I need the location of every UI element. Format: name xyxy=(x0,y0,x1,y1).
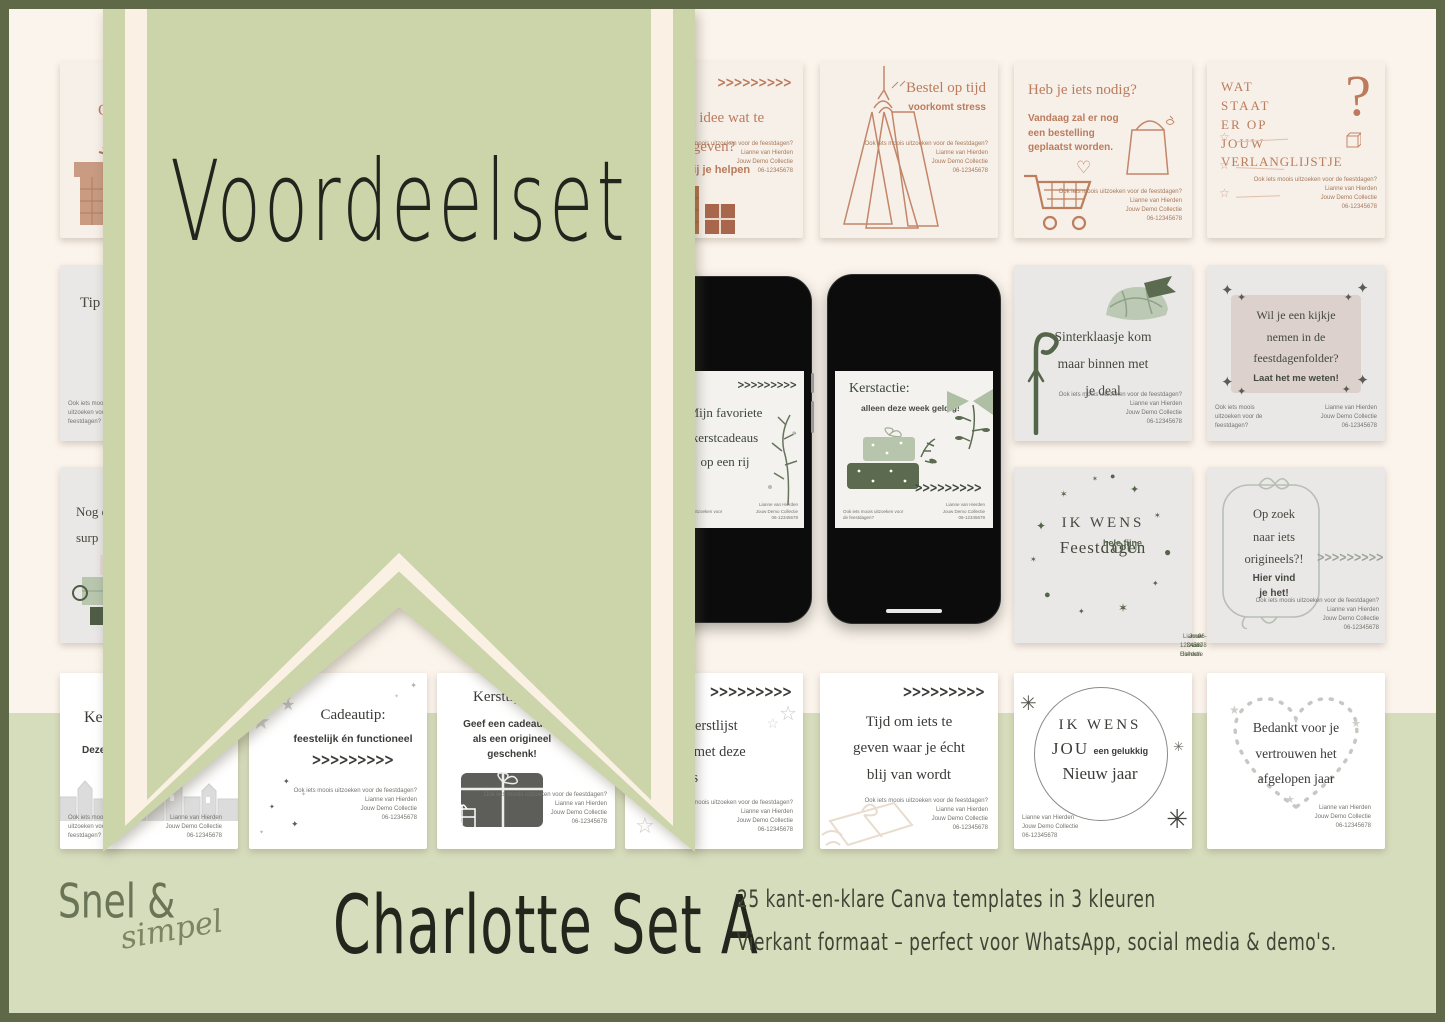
contact-block: Lianne van HierdenJouw Demo Collectie06-… xyxy=(1022,814,1078,841)
contact-line: Jouw Demo Collectie xyxy=(1256,615,1379,624)
chevrons-icon: >>>>>>>>> xyxy=(710,683,792,701)
star-icon: ☆ xyxy=(766,715,779,732)
firework-icon: ✳ xyxy=(1020,691,1037,716)
contact-line: Jouw Demo Collectie xyxy=(1059,206,1182,215)
contact-block: Ook iets moois uitzoeken voor de feestda… xyxy=(1215,404,1277,431)
template-card-sinterklaas: Sinterklaasje kom maar binnen met je dea… xyxy=(1014,265,1192,441)
card-title-line: IK WENS xyxy=(1034,717,1166,734)
chevrons-icon: >>>>>>>>> xyxy=(717,74,791,91)
contact-line: 06-12345678 xyxy=(1254,203,1377,212)
contact-line: Ook iets moois uitzoeken voor de feestda… xyxy=(865,797,988,806)
star-icon: ☆ xyxy=(1219,186,1230,200)
template-card-bedankt: ★ ★ ★ Bedankt voor je vertrouwen het afg… xyxy=(1207,673,1385,849)
card-title: Wil je een kijkje nemen in de feestdagen… xyxy=(1231,305,1361,370)
contact-line: Jouw Demo Collectie xyxy=(865,158,988,167)
chevrons-icon: >>>>>>>>> xyxy=(737,380,796,393)
star-icon: ☆ xyxy=(779,701,797,726)
contact-line: Ook iets moois uitzoeken voor de feestda… xyxy=(865,140,988,149)
sparkle-icon: ✦ xyxy=(1152,579,1159,588)
contact-block: Lianne van HierdenJouw Demo Collectie06-… xyxy=(1315,804,1371,831)
contact-block: Lianne van HierdenJouw Demo Collectie06-… xyxy=(943,502,985,522)
sparkle-icon: ✦ xyxy=(1356,279,1369,297)
gift-bag-icon xyxy=(1124,114,1176,178)
sparkle-icon: ✦ xyxy=(1344,291,1353,304)
card-title-line: WAT xyxy=(1221,78,1343,97)
contact-line: Ook iets moois uitzoeken voor de feestda… xyxy=(1059,391,1182,400)
card-title: Tijd om iets te geven waar je écht blij … xyxy=(820,709,998,788)
question-mark-icon: ? xyxy=(1345,62,1371,129)
card-title-line: afgelopen jaar xyxy=(1207,766,1385,792)
phone-screen-right: Kerstactie: alleen deze week geldig! >>>… xyxy=(835,371,993,528)
contact-line: Jouw Demo Collectie xyxy=(943,509,985,516)
staff-icon xyxy=(1026,319,1062,435)
contact-block: Ook iets moois uitzoeken voor de feestda… xyxy=(1059,188,1182,224)
dot-icon: ● xyxy=(1110,471,1115,481)
contact-block: Ook iets moois uitzoeken voor de feestda… xyxy=(1254,176,1377,212)
banner-layer-inner xyxy=(147,0,651,800)
dot-icon: ● xyxy=(1044,589,1051,601)
contact-line: Jouw Demo Collectie xyxy=(1254,194,1377,203)
card-title: Heb je iets nodig? xyxy=(1028,82,1137,99)
contact-line: Ook iets moois uitzoeken voor de feestda… xyxy=(843,509,905,523)
star-icon: ★ xyxy=(1285,793,1295,806)
phone-side-button xyxy=(811,401,814,433)
contact-block: Lianne van HierdenJouw Demo Collectie06-… xyxy=(756,502,798,522)
contact-line: Lianne van Hierden xyxy=(1254,185,1377,194)
contact-line: Ook iets moois uitzoeken voor de feestda… xyxy=(1059,188,1182,197)
contact-line: Ook iets moois uitzoeken voor de feestda… xyxy=(1215,404,1277,431)
contact-block: Lianne van HierdenJouw Demo Collectie06-… xyxy=(1321,404,1377,431)
card-subtitle: Laat het me weten! xyxy=(1231,373,1361,384)
card-body-line: geplaatst worden. xyxy=(1028,141,1119,156)
contact-line: 06-12345678 xyxy=(865,824,988,833)
template-card-tijd-om-iets: >>>>>>>>> Tijd om iets te geven waar je … xyxy=(820,673,998,849)
card-title-line: geven waar je écht xyxy=(820,735,998,761)
card-title-line: JOU een gelukkig xyxy=(1034,739,1166,759)
contact-block: Ook iets moois uitzoeken voor de feestda… xyxy=(1256,597,1379,633)
sparkle-icon: ✶ xyxy=(1118,601,1128,615)
template-card-origineels: Op zoek naar iets origineels?! Hier vind… xyxy=(1207,467,1385,643)
card-subtitle-line: Hier vind xyxy=(1229,571,1319,586)
template-card-feestdagenfolder: ✦ ✦ ✦ ✦ ✦ ✦ ✦ ✦ Wil je een kijkje nemen … xyxy=(1207,265,1385,441)
sparkle-icon: ✦ xyxy=(1130,483,1139,496)
set-title: Charlotte Set A xyxy=(333,878,759,973)
contact-line: Jouw Demo Collectie xyxy=(865,815,988,824)
phone-side-button xyxy=(811,373,814,393)
card-title: IK WENS JOU een gelukkig Nieuw jaar xyxy=(1034,717,1166,784)
contact-block: Ook iets moois uitzoeken voor de feestda… xyxy=(865,140,988,176)
sparkle-icon: ✶ xyxy=(1092,475,1098,483)
card-title-line: nemen in de xyxy=(1231,327,1361,349)
card-title-fragment: Ke xyxy=(84,709,103,727)
contact-line: Lianne van Hierden xyxy=(865,806,988,815)
contact-line: 06-12345678 xyxy=(1059,418,1182,427)
firework-icon: ✳ xyxy=(1173,739,1184,755)
contact-line: Lianne van Hierden xyxy=(1059,197,1182,206)
contact-line: 06-12345678 xyxy=(943,515,985,522)
mitre-hat-icon xyxy=(1098,275,1178,329)
small-word: een gelukkig xyxy=(1094,746,1149,756)
card-body: Vandaag zal er nog een bestelling geplaa… xyxy=(1028,112,1119,156)
card-body-line: een bestelling xyxy=(1028,127,1119,142)
contact-line: Ook iets moois uitzoeken voor de feestda… xyxy=(1256,597,1379,606)
card-title-line: Op zoek xyxy=(1229,503,1319,526)
promo-image: C >>>>>>>>> Geen idee wat te geven? Laat… xyxy=(0,0,1445,1022)
contact-line: Ook iets moois uitzoeken voor de feestda… xyxy=(1254,176,1377,185)
sparkle-icon: ✦ xyxy=(1342,383,1351,396)
voordeelset-banner: Voordeelset xyxy=(103,8,695,852)
small-word: hele fijne xyxy=(1103,538,1142,548)
contact-line: 06-12345678 xyxy=(1256,624,1379,633)
contact-line: 06-12345678 xyxy=(1315,822,1371,831)
sparkle-icon: ✦ xyxy=(1221,281,1234,299)
contact-line: Lianne van Hierden xyxy=(1059,400,1182,409)
description-line1: 25 kant-en-klare Canva templates in 3 kl… xyxy=(737,886,1156,914)
card-title-line: feestdagenfolder? xyxy=(1231,348,1361,370)
contact-line: 06-12345678 xyxy=(756,515,798,522)
big-word: JOU xyxy=(1052,739,1089,758)
contact-block: Ook iets moois uitzoeken voor de feestda… xyxy=(1059,391,1182,427)
card-title: Bedankt voor je vertrouwen het afgelopen… xyxy=(1207,715,1385,792)
home-indicator xyxy=(886,609,942,613)
contact-block: Ook iets moois uitzoeken voor de feestda… xyxy=(865,797,988,833)
star-icon: ☆ xyxy=(1219,158,1230,172)
template-card-feestdagen-wens: ✶ ✦ ✶ ● ✦ ✶ ✦ ● ✶ ✦ ✶ ● IK WENS JOU hele… xyxy=(1014,467,1192,643)
card-title-fragment: Tip xyxy=(80,295,100,312)
bow-sprig-icon xyxy=(943,387,993,453)
card-body-line: Vandaag zal er nog xyxy=(1028,112,1119,127)
card-title-line: STAAT xyxy=(1221,97,1343,116)
contact-line: Lianne van Hierden xyxy=(1256,606,1379,615)
sprig-icon xyxy=(758,409,802,509)
card-title-line: vertrouwen het xyxy=(1207,741,1385,767)
template-card-nieuw-jaar: ✳ ✳ ✳ IK WENS JOU een gelukkig Nieuw jaa… xyxy=(1014,673,1192,849)
chevrons-icon: >>>>>>>>> xyxy=(903,683,985,701)
card-title: IK WENS JOU hele fijne Feestdagen xyxy=(1014,515,1192,558)
contact-line: Lianne van Hierden xyxy=(943,502,985,509)
sparkle-icon: ✦ xyxy=(1237,291,1246,304)
phone-screen-title: Kerstactie: xyxy=(849,381,910,397)
template-card-verlanglijstje: WAT STAAT ER OP JOUW VERLANGLIJSTJE ? ☆ … xyxy=(1207,62,1385,238)
contact-line: 06-12345678 xyxy=(1321,422,1377,431)
contact-line: 06-12345678 xyxy=(1059,215,1182,224)
contact-line: Lianne van Hierden xyxy=(1321,404,1377,413)
sparkle-icon: ✶ xyxy=(1060,489,1068,500)
small-box-icon xyxy=(1345,132,1361,148)
card-title-line: Wil je een kijkje xyxy=(1231,305,1361,327)
phone-mockup-right: Kerstactie: alleen deze week geldig! >>>… xyxy=(827,274,1001,624)
chevrons-icon: >>>>>>>>> xyxy=(915,481,981,495)
chevrons-icon: >>>>>>>>> xyxy=(1317,551,1383,565)
contact-block: Ook iets moois uitzoeken voor de feestda… xyxy=(843,509,905,523)
card-title-line: Nieuw jaar xyxy=(1034,764,1166,784)
contact-line: Lianne van Hierden xyxy=(1022,814,1078,823)
card-title-line: Tijd om iets te xyxy=(820,709,998,735)
star-icon: ☆ xyxy=(1219,130,1230,144)
firework-icon: ✳ xyxy=(1166,804,1188,835)
template-card-heb-je-iets-nodig: Heb je iets nodig? Vandaag zal er nog ee… xyxy=(1014,62,1192,238)
card-title-line: blij van wordt xyxy=(820,762,998,788)
description-line2: Vierkant formaat – perfect voor WhatsApp… xyxy=(737,929,1337,957)
card-body-fragment: Deze xyxy=(82,745,105,756)
contact-line: 06-12345678 xyxy=(865,167,988,176)
contact-line: Lianne van Hierden xyxy=(865,149,988,158)
sparkle-icon: ✦ xyxy=(1078,607,1085,616)
contact-line: Jouw Demo Collectie xyxy=(1321,413,1377,422)
contact-line: 06-12345678 xyxy=(1180,633,1207,651)
card-title-line: naar iets xyxy=(1229,526,1319,549)
contact-line: Lianne van Hierden xyxy=(1315,804,1371,813)
contact-line: Jouw Demo Collectie xyxy=(1315,813,1371,822)
banner-title: Voordeelset xyxy=(103,136,695,266)
card-title-line: Bedankt voor je xyxy=(1207,715,1385,741)
contact-line: Jouw Demo Collectie xyxy=(756,509,798,516)
sparkle-icon: ✦ xyxy=(1237,385,1246,398)
contact-line: 06-12345678 xyxy=(1022,832,1078,841)
card-title-line: origineels?! xyxy=(1229,548,1319,571)
contact-line: Lianne van Hierden xyxy=(756,502,798,509)
contact-line: Jouw Demo Collectie xyxy=(1022,823,1078,832)
contact-line: Jouw Demo Collectie xyxy=(1059,409,1182,418)
card-title: Op zoek naar iets origineels?! xyxy=(1229,503,1319,571)
template-card-bestel-op-tijd: Bestel op tijd voorkomt stress Ook iets … xyxy=(820,62,998,238)
card-title-line: IK WENS xyxy=(1014,515,1192,532)
